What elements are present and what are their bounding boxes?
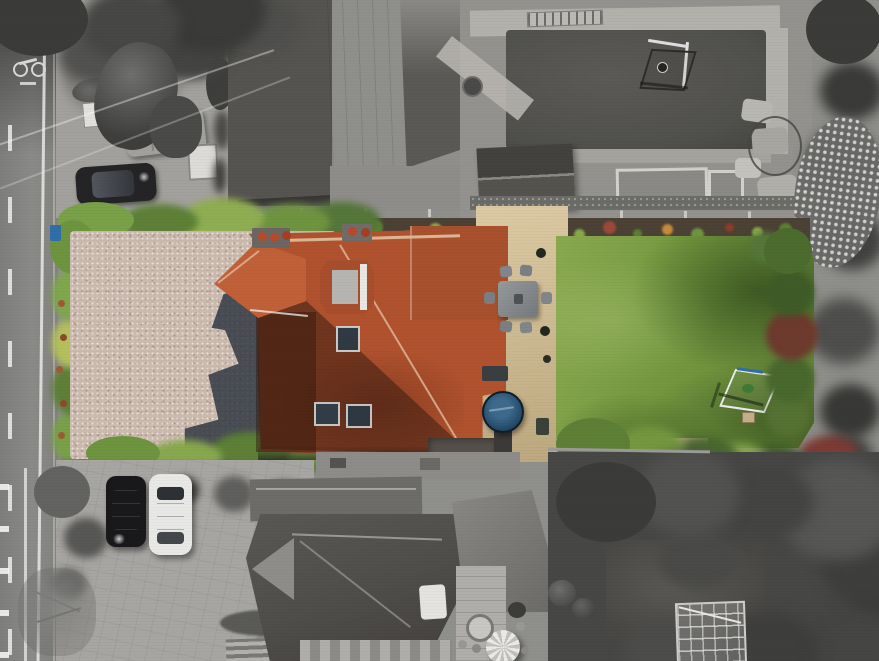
courtyard-chairs: [458, 640, 467, 649]
ladder: [527, 10, 603, 28]
planter-pot: [536, 248, 546, 258]
patio-chair: [499, 265, 512, 277]
football: [657, 62, 668, 73]
hedge-ball: [548, 580, 576, 606]
dormer-white-strip: [360, 264, 367, 310]
terrace-clutter: [330, 458, 346, 468]
car-dark-highlight: [138, 172, 150, 182]
paving-below-building: [330, 166, 476, 210]
patio-mat: [482, 366, 508, 381]
patio-chair: [499, 320, 512, 332]
dormer-flat-top: [332, 270, 358, 304]
spiral-plant: [748, 116, 802, 176]
skylight: [336, 326, 360, 352]
kerb-dashes-bottom: [0, 478, 9, 658]
building-flat-roof: [327, 0, 407, 173]
car-black-glass-roof: [112, 490, 140, 530]
cycle-lane-icon: [31, 62, 46, 77]
striped-paving: [300, 640, 452, 661]
chimney-pots-2: [348, 227, 357, 236]
gray-shrubs-bottom-left: [34, 466, 90, 518]
tree-belt-right: [806, 0, 879, 64]
hedge-ball: [572, 598, 595, 619]
rear-dark-box: [494, 430, 512, 452]
house-roof-west-ribs: [256, 312, 316, 452]
car-white-roof-lines: [157, 502, 184, 530]
house-roof: [214, 224, 506, 466]
goal-green-item: [742, 384, 754, 393]
bare-tree: [18, 568, 96, 656]
road-kerb: [53, 0, 55, 661]
chimney-pots: [258, 232, 267, 241]
building-roof-right: [400, 0, 466, 168]
car-dark-glass: [91, 170, 135, 199]
cycle-lane-icon: [20, 82, 36, 85]
aerial-photo: [0, 0, 879, 661]
patio-chair: [484, 292, 495, 304]
patio-chair: [520, 264, 533, 276]
blue-wheelie-bin: [50, 225, 61, 241]
patio-chair: [541, 292, 552, 304]
chimney-stack-2: [342, 224, 372, 241]
dining-table-slot: [514, 294, 523, 304]
garden-barrel: [462, 76, 483, 97]
green-bin: [536, 418, 549, 435]
flower-pots-row: [58, 300, 65, 307]
tree-canopy-bottom-right: [556, 462, 656, 542]
patio-chair: [520, 322, 533, 334]
neighbour-roof-upper-ridge: [256, 488, 416, 490]
terrace-clutter: [420, 458, 440, 470]
courtyard-plants: [508, 602, 526, 618]
white-bench-cushion: [419, 584, 447, 620]
round-table: [466, 614, 494, 642]
skylight: [314, 402, 340, 426]
house-roof-ribbed-section: [410, 226, 508, 320]
neighbour-lawn: [506, 30, 766, 149]
hot-tub: [482, 391, 524, 433]
car-white-windscreen: [157, 487, 184, 500]
car-black-highlight: [112, 534, 126, 544]
skylight: [346, 404, 372, 428]
car-white-rear-window: [157, 532, 184, 544]
hedge-right-garden: [764, 228, 812, 274]
lawn-tan-patch: [742, 412, 755, 423]
